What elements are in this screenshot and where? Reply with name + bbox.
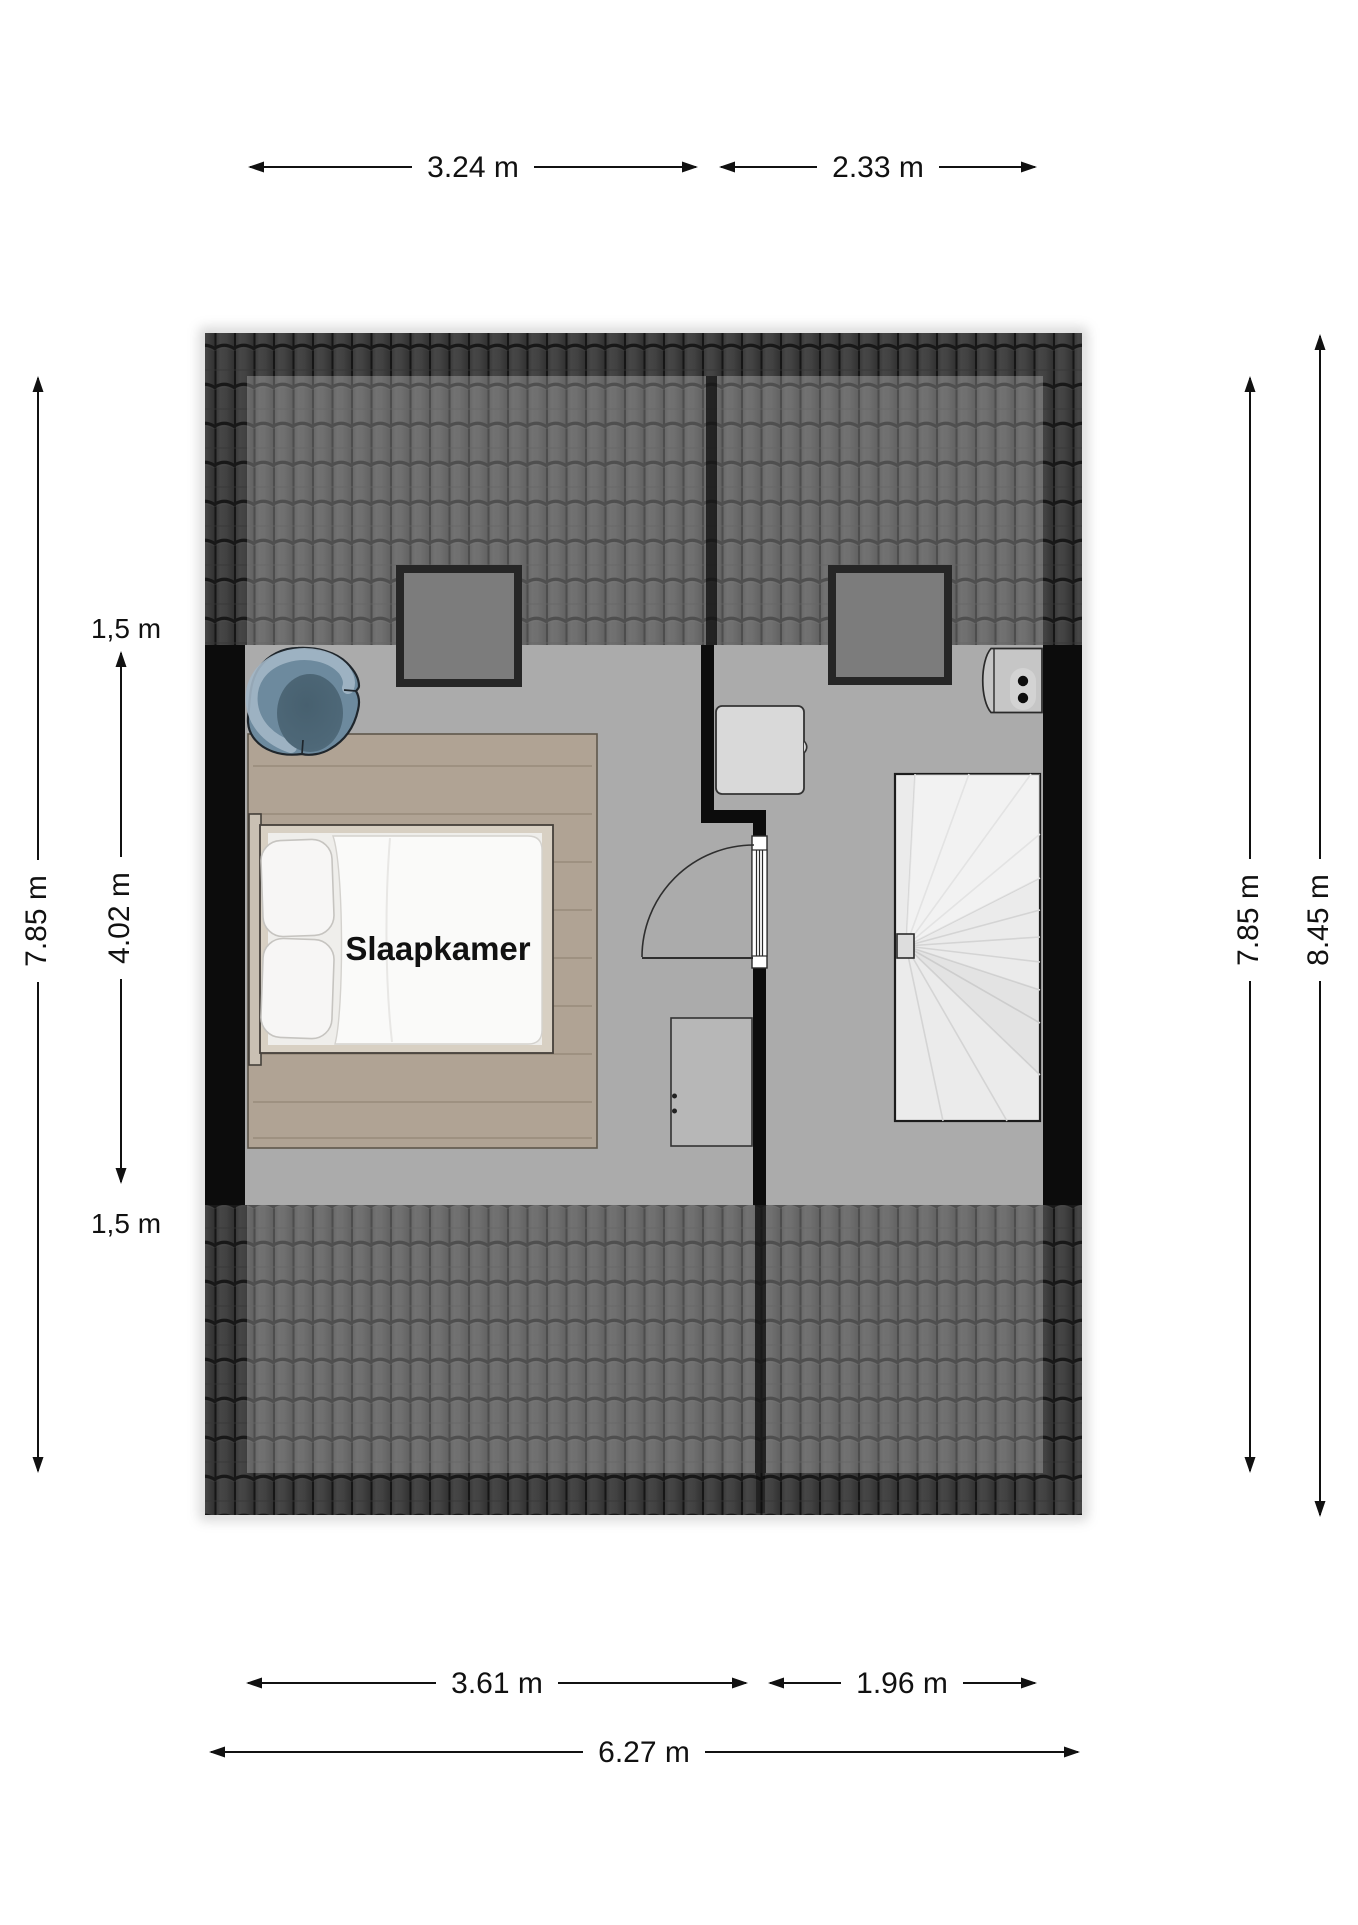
svg-text:Slaapkamer: Slaapkamer xyxy=(345,930,530,967)
svg-text:7.85 m: 7.85 m xyxy=(20,875,53,967)
svg-text:1,5 m: 1,5 m xyxy=(91,1208,161,1239)
svg-text:6.27 m: 6.27 m xyxy=(598,1736,690,1769)
svg-text:8.45 m: 8.45 m xyxy=(1302,874,1335,966)
svg-text:3.24 m: 3.24 m xyxy=(427,151,519,184)
svg-text:7.85 m: 7.85 m xyxy=(1232,874,1265,966)
svg-text:3.61 m: 3.61 m xyxy=(451,1667,543,1700)
svg-text:4.02 m: 4.02 m xyxy=(103,872,136,964)
svg-text:1,5 m: 1,5 m xyxy=(91,613,161,644)
svg-text:2.33 m: 2.33 m xyxy=(832,151,924,184)
svg-text:1.96 m: 1.96 m xyxy=(856,1667,948,1700)
